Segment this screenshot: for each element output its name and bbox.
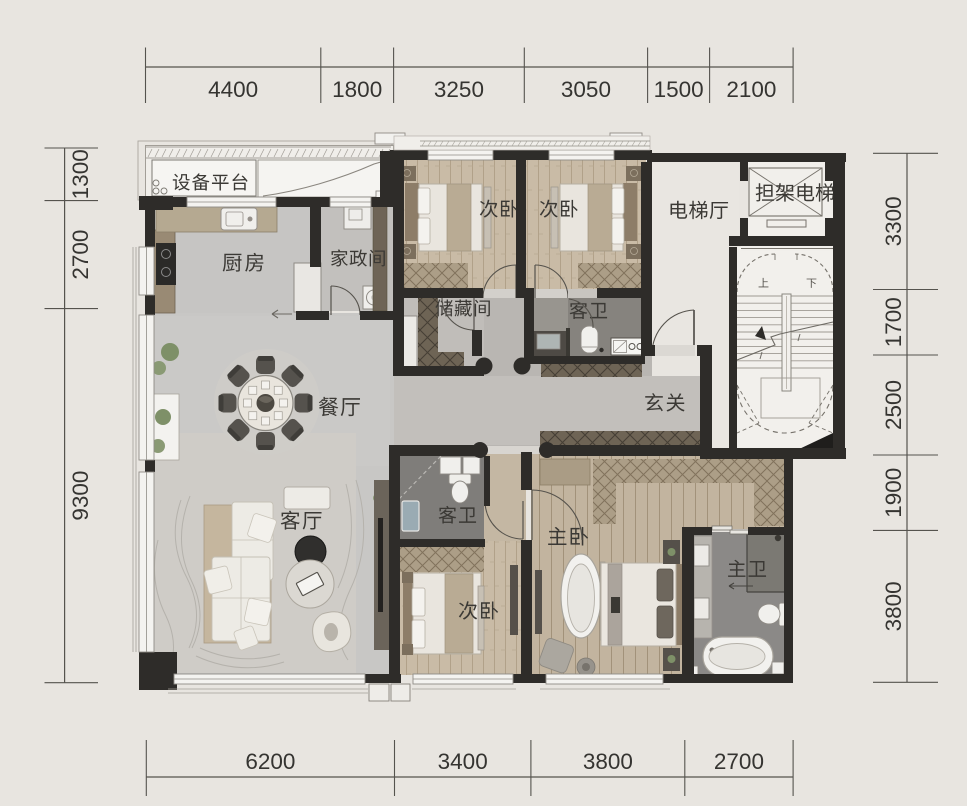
svg-text:1500: 1500 — [654, 77, 704, 102]
svg-text:1800: 1800 — [332, 77, 382, 102]
svg-text:3800: 3800 — [881, 581, 906, 631]
svg-text:1300: 1300 — [68, 149, 93, 199]
svg-text:6200: 6200 — [245, 749, 295, 774]
svg-text:4400: 4400 — [208, 77, 258, 102]
svg-text:1900: 1900 — [881, 468, 906, 518]
svg-text:9300: 9300 — [68, 471, 93, 521]
svg-text:3800: 3800 — [583, 749, 633, 774]
svg-text:2700: 2700 — [68, 230, 93, 280]
svg-text:2700: 2700 — [714, 749, 764, 774]
svg-text:2500: 2500 — [881, 380, 906, 430]
svg-text:3250: 3250 — [434, 77, 484, 102]
svg-text:2100: 2100 — [726, 77, 776, 102]
svg-text:3400: 3400 — [438, 749, 488, 774]
svg-text:3300: 3300 — [881, 196, 906, 246]
svg-text:1700: 1700 — [881, 297, 906, 347]
svg-text:3050: 3050 — [561, 77, 611, 102]
